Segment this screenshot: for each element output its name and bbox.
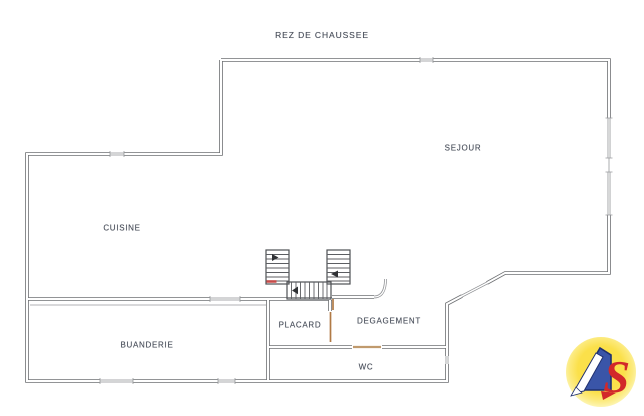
swing-door-arc — [374, 279, 386, 297]
walls-outline — [27, 60, 609, 381]
window-segments — [100, 60, 609, 381]
room-label-cuisine: CUISINE — [103, 224, 140, 233]
room-label-wc: WC — [359, 363, 374, 372]
room-label-degagement: DEGAGEMENT — [357, 317, 421, 326]
floorplan-drawing — [0, 0, 644, 416]
room-label-buanderie: BUANDERIE — [121, 341, 174, 350]
room-label-placard: PLACARD — [279, 321, 322, 330]
floor-title: REZ DE CHAUSSEE — [275, 30, 369, 40]
stair-red-mark — [267, 280, 277, 283]
wall-detail-hairlines — [30, 57, 613, 384]
scanned-floorplan-page: REZ DE CHAUSSEE SEJOUR CUISINE BUANDERIE… — [0, 0, 644, 416]
stair-direction-arrow — [292, 287, 298, 295]
logo-letter-s: S — [603, 351, 631, 403]
4s-logo-icon: S — [563, 334, 639, 410]
stair-direction-arrow — [272, 254, 279, 261]
stair-direction-arrow — [331, 271, 338, 278]
room-label-sejour: SEJOUR — [445, 144, 482, 153]
staircase — [266, 250, 350, 299]
